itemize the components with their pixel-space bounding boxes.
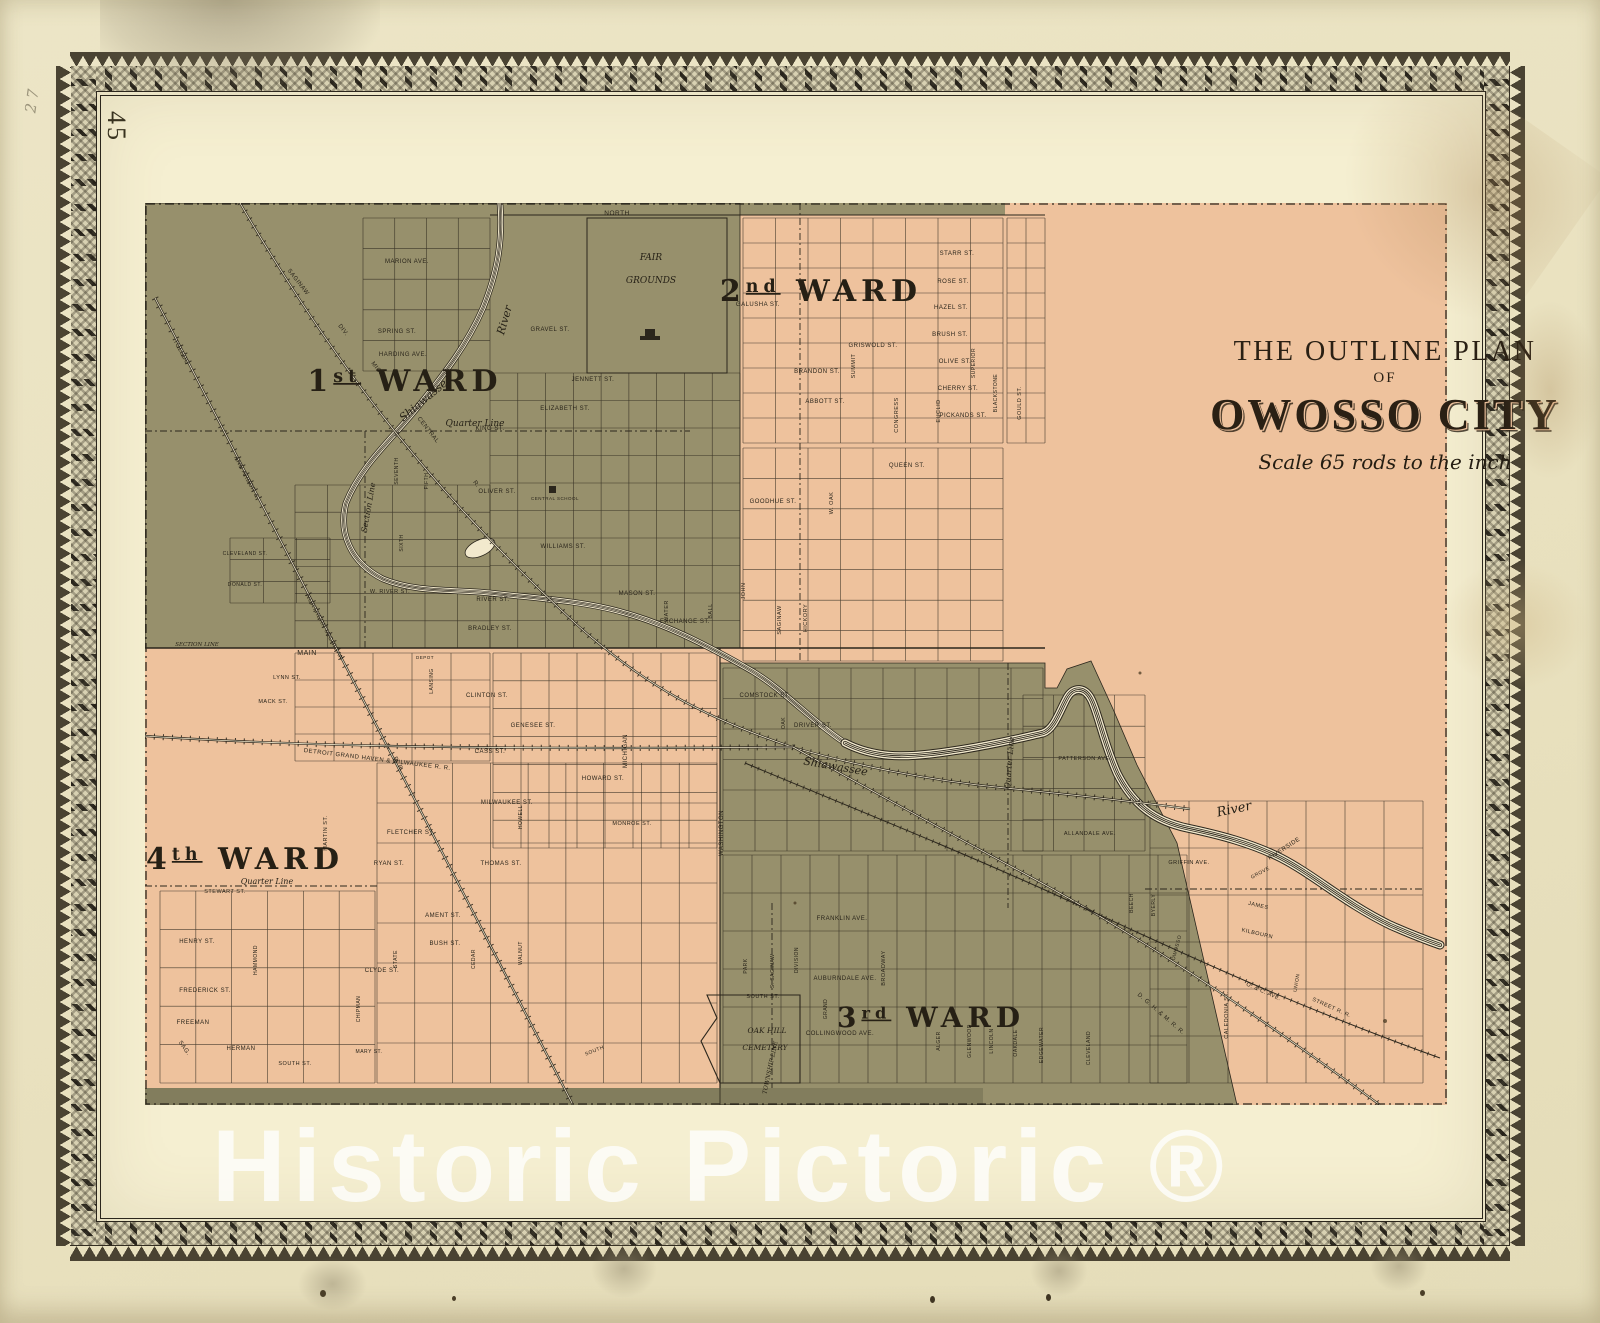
map-label: GRISWOLD ST.: [848, 343, 897, 349]
map-label: DIVISION: [794, 947, 800, 973]
paper-speck: [930, 1296, 935, 1303]
map-label: WATER: [664, 600, 670, 622]
map-label: SIXTH: [399, 534, 405, 551]
map-label: MARY ST.: [356, 1049, 383, 1055]
border-band-top: [71, 66, 1509, 91]
map-label: CENTRAL SCHOOL: [531, 496, 579, 501]
map-label: GRIFFIN AVE.: [1168, 860, 1209, 866]
map-label: ALLANDALE AVE.: [1064, 831, 1116, 837]
map-label: CLINTON ST.: [466, 693, 508, 699]
map-label: STARR ST.: [940, 251, 975, 257]
map-label: SOUTH ST.: [278, 1061, 311, 1067]
paper-stain: [295, 1255, 370, 1313]
map-label: FIFTH: [424, 473, 430, 490]
paper-stain: [100, 0, 380, 95]
map-label: LANSING: [429, 668, 435, 693]
map-label: WALNUT: [518, 941, 524, 965]
map-label: W. OAK: [829, 492, 835, 515]
map-label: QUEEN ST.: [889, 463, 925, 469]
map-label: RYAN ST.: [374, 861, 404, 867]
map-label: FLETCHER ST.: [387, 830, 435, 836]
map-label: SECTION LINE: [175, 642, 219, 648]
border-band-left: [71, 66, 96, 1245]
watermark: Historic Pictoric ®: [212, 1108, 1231, 1225]
map-label: PARK: [743, 958, 749, 973]
map-label: HERMAN: [226, 1046, 255, 1052]
map-label: HICKORY: [803, 604, 809, 632]
map-label: PATTERSON AVE.: [1058, 756, 1111, 762]
map-label: ABBOTT ST.: [805, 399, 844, 405]
map-label: MILWAUKEE ST.: [481, 800, 533, 806]
map-label: AMENT ST.: [425, 913, 461, 919]
map-label: MAIN: [297, 650, 317, 657]
map-label: OLIVER ST.: [478, 489, 515, 495]
map-label: HARDING AVE.: [379, 352, 427, 358]
map-label: CASS ST.: [475, 749, 506, 755]
paper-speck: [1046, 1294, 1051, 1301]
map-label: MARION AVE.: [385, 259, 429, 265]
map-label: BRADLEY ST.: [468, 626, 512, 632]
map-label: S. SAGINAW: [770, 954, 776, 989]
paper-stain: [1368, 1238, 1430, 1294]
map-label: HOWELL: [518, 805, 524, 829]
map-label: EUCLID: [936, 399, 942, 422]
map-label: BLACKSTONE: [993, 374, 999, 413]
map-label: ELIZABETH ST.: [540, 406, 590, 412]
map-label: MASON ST.: [619, 591, 656, 597]
map-label: BYERLY: [1151, 894, 1157, 917]
border-fringe-right: [1509, 66, 1525, 1246]
map-label: WILLIAMS ST.: [540, 544, 585, 550]
map-label: FAIR: [639, 253, 663, 263]
map-label: THOMAS ST.: [480, 861, 521, 867]
map-label: SPRING ST.: [378, 329, 416, 335]
map-label: CEMETERY: [742, 1043, 788, 1052]
map-label: Quarter Line: [446, 419, 505, 429]
map-label: SEVENTH: [394, 457, 400, 484]
paper-speck: [1139, 672, 1142, 675]
map-label: SAGINAW: [777, 605, 783, 635]
map-label: DEPOT: [416, 655, 434, 660]
map-label: BUSH ST.: [429, 941, 460, 947]
paper-speck: [1420, 1290, 1425, 1296]
paper-speck: [452, 1296, 456, 1301]
map-label: HAZEL ST.: [934, 305, 968, 311]
paper-speck: [1383, 1019, 1387, 1023]
paper-stain: [588, 1238, 660, 1300]
map-label: GOULD ST.: [1017, 386, 1023, 420]
map-label: SUPERIOR: [971, 348, 977, 378]
map-label: LYNN ST.: [273, 675, 301, 681]
map-label: BROADWAY: [881, 950, 887, 985]
map-title-block: THE OUTLINE PLAN OF OWOSSO CITY Scale 65…: [1185, 336, 1585, 474]
map-label: SUMMIT: [851, 354, 857, 379]
central-school-block: [549, 486, 556, 493]
map-label: JOHN: [741, 583, 747, 600]
atlas-page: { "page": { "number": "45", "handwritten…: [0, 0, 1600, 1323]
map-label: BRANDON ST.: [794, 369, 840, 375]
map-label: Quarter Line: [241, 877, 294, 886]
map-label: FRANKLIN AVE.: [817, 916, 868, 922]
map-label: W. RIVER ST.: [370, 589, 410, 595]
map-label: JENNETT ST.: [572, 377, 615, 383]
map-label: CHERRY ST.: [938, 386, 978, 392]
map-label: HAMMOND: [253, 945, 259, 975]
map-label: DONALD ST.: [228, 582, 262, 588]
map-label: BRUSH ST.: [932, 332, 968, 338]
map-label: HENRY ST.: [179, 939, 215, 945]
map-label: GENESEE ST.: [511, 723, 556, 729]
map-label: SOUTH ST.: [746, 994, 779, 1000]
map-title-line3: OWOSSO CITY: [1185, 389, 1585, 440]
map-label: CALEDONIA ST.: [1224, 991, 1230, 1038]
map-label: BEECH: [1129, 893, 1135, 913]
map-label: COMSTOCK ST.: [740, 693, 791, 699]
map-label: MONROE ST.: [612, 821, 651, 827]
border-fringe-bottom: [70, 1245, 1510, 1261]
border-fringe-left: [56, 66, 72, 1246]
map-label: CLEVELAND: [1086, 1031, 1092, 1065]
handwritten-note: 2 7: [21, 88, 42, 114]
page-number: 45: [101, 111, 131, 143]
map-label: MICHIGAN: [623, 734, 629, 768]
map-label: CEDAR: [471, 949, 477, 969]
map-label: CONGRESS: [894, 397, 900, 432]
map-label: PICKANDS ST.: [939, 413, 986, 419]
map-label: RIVER ST.: [476, 597, 509, 603]
map-title-line2: OF: [1185, 370, 1585, 387]
map-title-line1: THE OUTLINE PLAN: [1185, 336, 1585, 368]
map-label: FREDERICK ST.: [179, 988, 231, 994]
map-label: STATE: [393, 950, 399, 968]
map-label: AUBURNDALE AVE.: [813, 976, 876, 982]
map-label: GOODHUE ST.: [750, 499, 797, 505]
map-label: GRAND: [823, 999, 829, 1020]
map-scale-note: Scale 65 rods to the inch: [1185, 450, 1585, 474]
map-label: NORTH: [604, 210, 630, 217]
map-label: OAK: [781, 717, 787, 729]
map-label: OLIVE ST.: [939, 359, 972, 365]
border-band-right: [1484, 66, 1509, 1245]
map-label: EDGEWATER: [1039, 1027, 1045, 1063]
map-label: BALL: [708, 603, 714, 618]
paper-speck: [320, 1290, 326, 1297]
map-label: HOWARD ST.: [582, 776, 624, 782]
map-label: WASHINGTON: [719, 810, 725, 856]
map-label: OAK HILL: [747, 1026, 786, 1035]
map-label: GRAVEL ST.: [530, 327, 569, 333]
map-label: CHIPMAN: [356, 996, 362, 1023]
map-label: FREEMAN: [177, 1020, 210, 1026]
border-fringe-top: [70, 52, 1510, 68]
map-label: ALGER: [936, 1031, 942, 1050]
map-label: STEWART ST.: [204, 889, 245, 895]
map-label: ROSE ST.: [937, 279, 968, 285]
map-label: DRIVER ST.: [794, 723, 832, 729]
paper-stain: [1028, 1243, 1090, 1299]
paper-speck: [794, 902, 797, 905]
map-label: CLEVELAND ST.: [223, 551, 268, 557]
map-label: MACK ST.: [258, 699, 287, 705]
map-label: GROUNDS: [626, 276, 676, 286]
